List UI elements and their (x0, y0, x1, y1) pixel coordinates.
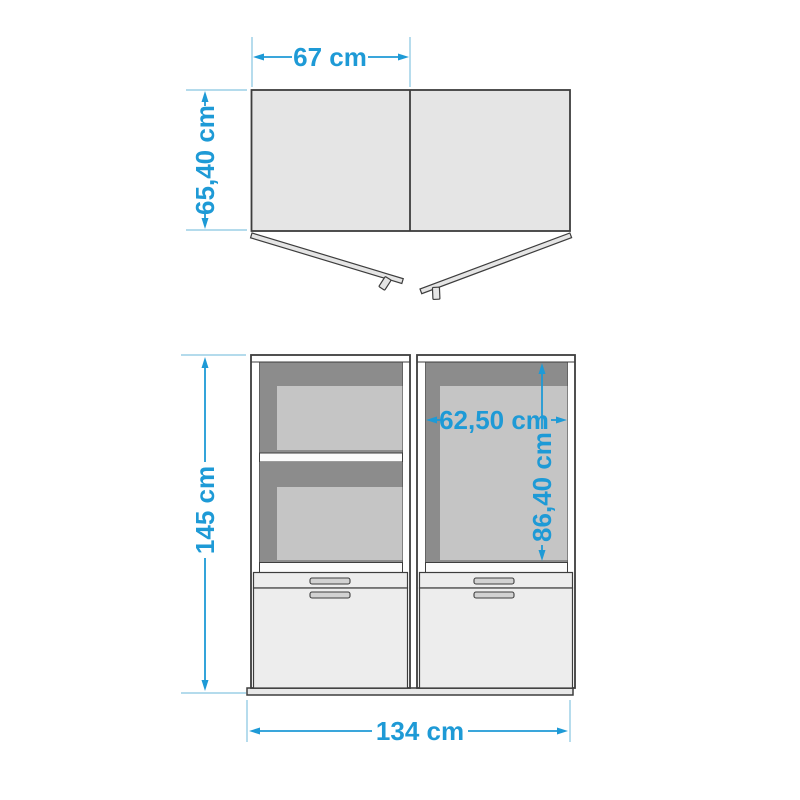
total-width-label: 134 cm (376, 716, 464, 746)
arrowhead-right (398, 54, 409, 61)
left-cabinet-column (251, 355, 410, 688)
large-door-front (420, 588, 573, 688)
arrowhead-down (202, 680, 209, 691)
cabinet-dimension-diagram: 67 cm 65,40 cm (0, 0, 800, 800)
arrowhead-left (249, 728, 260, 735)
page: { "views": { "top_view": { "door_width_l… (0, 0, 800, 800)
large-door-handle (310, 592, 350, 598)
dimension-depth: 65,40 cm (186, 90, 247, 230)
inner-height-label: 86,40 cm (527, 432, 557, 542)
door-width-label: 67 cm (293, 42, 367, 72)
large-door-front (254, 588, 408, 688)
top-view-left-open-door (247, 233, 403, 294)
small-drawer-handle (474, 578, 514, 584)
arrowhead-left (253, 54, 264, 61)
dimension-height: 145 cm (181, 355, 246, 693)
right-door-handle (432, 287, 440, 299)
depth-label: 65,40 cm (190, 105, 220, 215)
right-door-panel (420, 233, 572, 294)
left-door-handle (379, 276, 391, 290)
base-plinth (247, 688, 573, 695)
inner-width-label: 62,50 cm (439, 405, 549, 435)
dimension-inner-width: 62,50 cm (426, 405, 567, 435)
upper-compartment-back-panel (277, 386, 403, 450)
middle-shelf (260, 453, 403, 462)
dimension-door-width: 67 cm (252, 37, 410, 87)
top-view: 67 cm 65,40 cm (186, 37, 576, 304)
front-view: 62,50 cm 86,40 cm 145 cm (181, 355, 575, 746)
lower-compartment-back-panel (277, 487, 403, 560)
dimension-total-width: 134 cm (247, 700, 570, 746)
arrowhead-down (202, 218, 209, 229)
height-label: 145 cm (190, 466, 220, 554)
top-view-right-open-door (420, 233, 576, 304)
drawer-top-board (260, 563, 403, 573)
arrowhead-right (557, 728, 568, 735)
left-door-panel (251, 233, 404, 283)
arrowhead-up (202, 91, 209, 102)
large-door-handle (474, 592, 514, 598)
arrowhead-up (202, 357, 209, 368)
drawer-top-board (426, 563, 568, 573)
small-drawer-handle (310, 578, 350, 584)
